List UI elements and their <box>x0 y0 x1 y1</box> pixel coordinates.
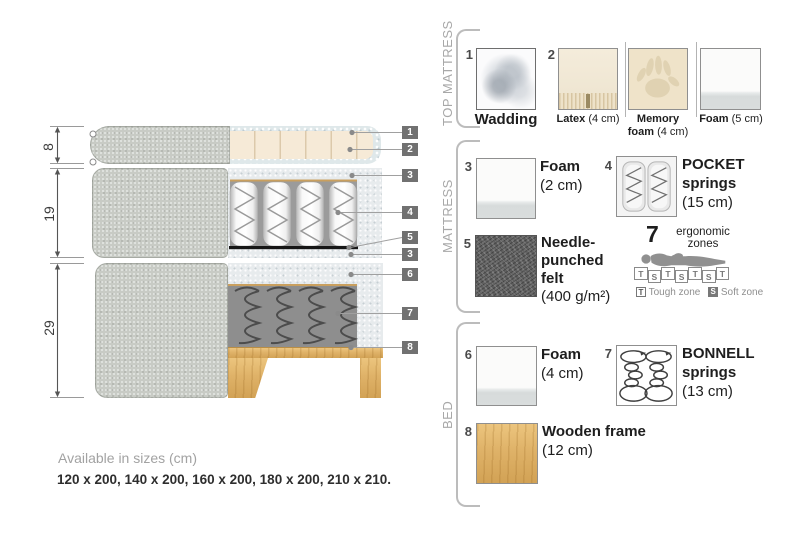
option-divider-2 <box>696 42 697 117</box>
bonnell-springs-image <box>616 345 677 406</box>
foam-5cm-label: Foam (5 cm) <box>686 113 776 126</box>
wooden-frame-image <box>476 423 538 484</box>
mattress-fabric <box>92 168 228 258</box>
foam-2cm-image <box>476 158 536 219</box>
zone-bar: T S T S T S T <box>634 267 729 280</box>
zone-legend: T Tough zone S Soft zone <box>636 287 763 298</box>
callout-badge-3b: 3 <box>402 248 418 261</box>
pocket-springs-label: POCKET springs (15 cm) <box>682 155 745 212</box>
bed-wooden-leg-left <box>228 358 268 398</box>
foam-4cm-label: Foam (4 cm) <box>541 345 584 383</box>
soft-zone-key: S <box>708 287 718 297</box>
zone-cell-t: T <box>716 267 730 280</box>
tough-zone-key: T <box>636 287 646 297</box>
item-number-5: 5 <box>457 236 471 251</box>
bed-wooden-leg-right <box>360 358 381 398</box>
option-divider-1 <box>625 42 626 117</box>
foam-5cm-image <box>700 48 761 110</box>
bed-bonnell-area <box>228 286 357 347</box>
pocket-springs-icon <box>617 157 676 216</box>
callout-badge-8: 8 <box>402 341 418 354</box>
callout-badge-3: 3 <box>402 169 418 182</box>
topmattress-latex-core <box>230 131 373 159</box>
dim-29cm: 29 <box>41 313 57 343</box>
callout-badge-1: 1 <box>402 126 418 139</box>
latex-notch <box>586 94 590 108</box>
foam-4cm-image <box>476 346 537 406</box>
section-label-mattress: MATTRESS <box>440 179 455 253</box>
bed-fabric <box>95 263 228 398</box>
latex-image <box>558 48 618 110</box>
dimension-ticks <box>50 127 84 398</box>
zone-cell-t: T <box>688 267 702 280</box>
mattress-infographic: 1 2 3 4 5 3 6 7 8 8 19 29 TOP MATTRESS M… <box>0 0 800 533</box>
zones-title: ergonomic zones <box>672 226 734 250</box>
sleeping-person-icon <box>634 250 732 268</box>
callout-badge-4: 4 <box>402 206 418 219</box>
zone-cell-s: S <box>702 270 716 283</box>
bed-foam-right <box>357 263 383 347</box>
bonnell-springs-label: BONNELL springs (13 cm) <box>682 344 755 401</box>
foam-2cm-label: Foam (2 cm) <box>540 157 583 195</box>
item-number-8: 8 <box>458 424 472 439</box>
tough-zone-text: Tough zone <box>649 287 701 298</box>
sizes-title: Available in sizes (cm) <box>58 450 197 466</box>
callout-badge-2: 2 <box>402 143 418 156</box>
sizes-list: 120 x 200, 140 x 200, 160 x 200, 180 x 2… <box>57 472 391 487</box>
callout-badge-7: 7 <box>402 307 418 320</box>
zone-cell-t: T <box>661 267 675 280</box>
hand-imprint-icon <box>629 49 687 109</box>
item-number-4: 4 <box>598 158 612 173</box>
zone-cell-s: S <box>675 270 689 283</box>
felt-label: Needle- punched felt (400 g/m²) <box>541 234 610 306</box>
section-label-bed: BED <box>440 401 455 429</box>
item-number-1: 1 <box>459 47 473 62</box>
zone-cell-t: T <box>634 267 648 280</box>
pocket-springs-image <box>616 156 677 217</box>
dim-19cm: 19 <box>41 199 57 229</box>
item-number-2: 2 <box>541 47 555 62</box>
section-label-top-mattress: TOP MATTRESS <box>440 20 455 126</box>
zones-number: 7 <box>646 221 659 248</box>
bonnell-springs-icon <box>617 346 676 405</box>
wadding-image <box>476 48 536 110</box>
memory-foam-image <box>628 48 688 110</box>
wadding-label: Wadding <box>456 111 556 128</box>
callout-badge-6: 6 <box>402 268 418 281</box>
dim-8cm: 8 <box>40 132 56 162</box>
felt-image <box>475 235 537 297</box>
bed-wooden-slat <box>228 347 383 358</box>
wooden-frame-label: Wooden frame (12 cm) <box>542 422 646 460</box>
mattress-springs-area <box>230 181 357 247</box>
soft-zone-text: Soft zone <box>721 287 763 298</box>
item-number-3: 3 <box>458 159 472 174</box>
item-number-7: 7 <box>598 346 612 361</box>
item-number-6: 6 <box>458 347 472 362</box>
zone-cell-s: S <box>648 270 662 283</box>
topmattress-fabric <box>90 126 230 164</box>
callout-badge-5: 5 <box>402 231 418 244</box>
